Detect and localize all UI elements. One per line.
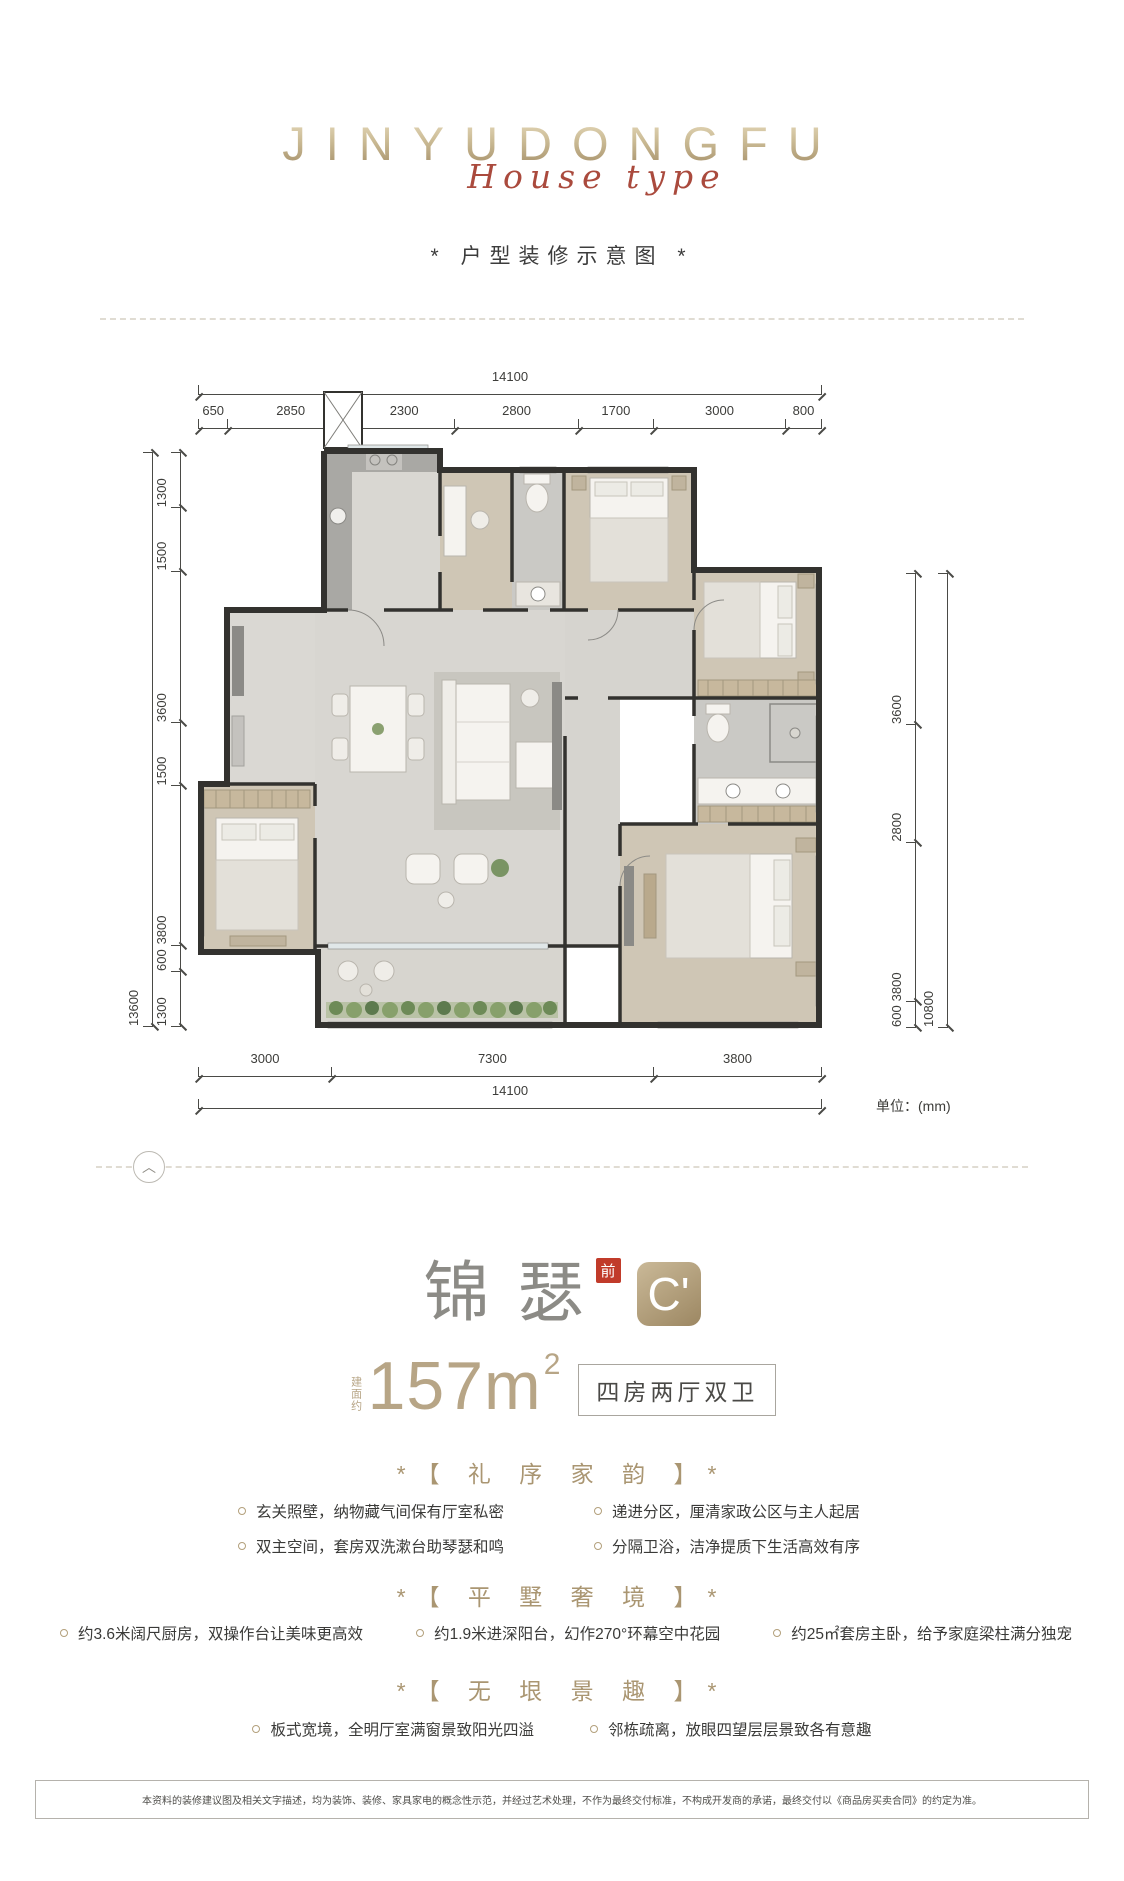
red-seal-icon: 前 bbox=[596, 1258, 621, 1283]
layout-tag: 四房两厅双卫 bbox=[578, 1364, 776, 1416]
disclaimer-text: 本资料的装修建议图及相关文字描述，均为装饰、装修、家具家电的概念性示范，并经过艺… bbox=[35, 1780, 1089, 1819]
dim-right-total: 10800 bbox=[925, 573, 948, 1028]
feature-bullet: 约25㎡套房主卧，给予家庭梁柱满分独宠 bbox=[773, 1622, 1072, 1644]
unit-name: 锦瑟 bbox=[424, 1256, 612, 1329]
dim-right-segments: 360028003800600 bbox=[893, 573, 916, 1028]
feature-bullet: 约3.6米阔尺厨房，双操作台让美味更高效 bbox=[60, 1622, 363, 1644]
collapse-icon[interactable]: ︿ bbox=[133, 1151, 165, 1183]
area-superscript: 2 bbox=[544, 1348, 561, 1382]
section-heading-1: *【 礼 序 家 韵 】* bbox=[0, 1455, 1124, 1489]
feature-bullet: 邻栋疏离，放眼四望层层景致各有意趣 bbox=[590, 1718, 872, 1740]
bullet-ring-icon bbox=[238, 1542, 246, 1550]
bullet-ring-icon bbox=[60, 1629, 68, 1637]
unit-note: 单位：(mm) bbox=[876, 1096, 951, 1116]
feature-bullet: 玄关照壁，纳物藏气间保有厅室私密 bbox=[238, 1500, 530, 1522]
section-bullets-3: 板式宽境，全明厅室满窗景致阳光四溢邻栋疏离，放眼四望层层景致各有意趣 bbox=[0, 1718, 1124, 1740]
feature-bullet: 板式宽境，全明厅室满窗景致阳光四溢 bbox=[252, 1718, 534, 1740]
page-subtitle: * 户型装修示意图 * bbox=[0, 240, 1124, 270]
section-bullets-2: 约3.6米阔尺厨房，双操作台让美味更高效约1.9米进深阳台，幻作270°环幕空中… bbox=[60, 1622, 1072, 1644]
feature-bullet: 约1.9米进深阳台，幻作270°环幕空中花园 bbox=[416, 1622, 720, 1644]
area-prefix: 建面约 bbox=[348, 1376, 364, 1412]
brand-script-text: House type bbox=[0, 157, 1124, 196]
floorplan-flue bbox=[324, 392, 362, 448]
bullet-ring-icon bbox=[590, 1725, 598, 1733]
unit-area-row: 建面约 157m 2 四房两厅双卫 bbox=[0, 1348, 1124, 1418]
bullet-ring-icon bbox=[238, 1507, 246, 1515]
bullet-ring-icon bbox=[252, 1725, 260, 1733]
feature-bullet: 递进分区，厘清家政公区与主人起居 bbox=[594, 1500, 886, 1522]
area-value: 157m bbox=[368, 1355, 542, 1418]
section-heading-3: *【 无 垠 景 趣 】* bbox=[0, 1672, 1124, 1706]
feature-bullet: 分隔卫浴，洁净提质下生活高效有序 bbox=[594, 1535, 886, 1557]
top-dashed-divider bbox=[100, 318, 1024, 320]
dim-left-total: 13600 bbox=[130, 452, 153, 1027]
bullet-ring-icon bbox=[773, 1629, 781, 1637]
bullet-ring-icon bbox=[594, 1542, 602, 1550]
bottom-dashed-divider bbox=[96, 1166, 1028, 1168]
dim-left-segments: 130015003600150038006001300 bbox=[158, 452, 181, 1027]
feature-bullet: 双主空间，套房双洗漱台助琴瑟和鸣 bbox=[238, 1535, 530, 1557]
unit-type-badge: C' bbox=[637, 1262, 701, 1326]
section-bullets-1: 玄关照壁，纳物藏气间保有厅室私密递进分区，厘清家政公区与主人起居双主空间，套房双… bbox=[162, 1500, 962, 1557]
unit-title-row: 锦瑟 前 C' bbox=[0, 1256, 1124, 1329]
dim-bottom-total: 14100 bbox=[198, 1086, 822, 1109]
floorplan-drawing bbox=[198, 386, 822, 1031]
brochure-page: JINYUDONGFU House type * 户型装修示意图 * 14100… bbox=[0, 0, 1124, 1881]
bullet-ring-icon bbox=[416, 1629, 424, 1637]
section-heading-2: *【 平 墅 奢 境 】* bbox=[0, 1578, 1124, 1612]
dim-bottom-segments: 300073003800 bbox=[198, 1052, 822, 1077]
bullet-ring-icon bbox=[594, 1507, 602, 1515]
